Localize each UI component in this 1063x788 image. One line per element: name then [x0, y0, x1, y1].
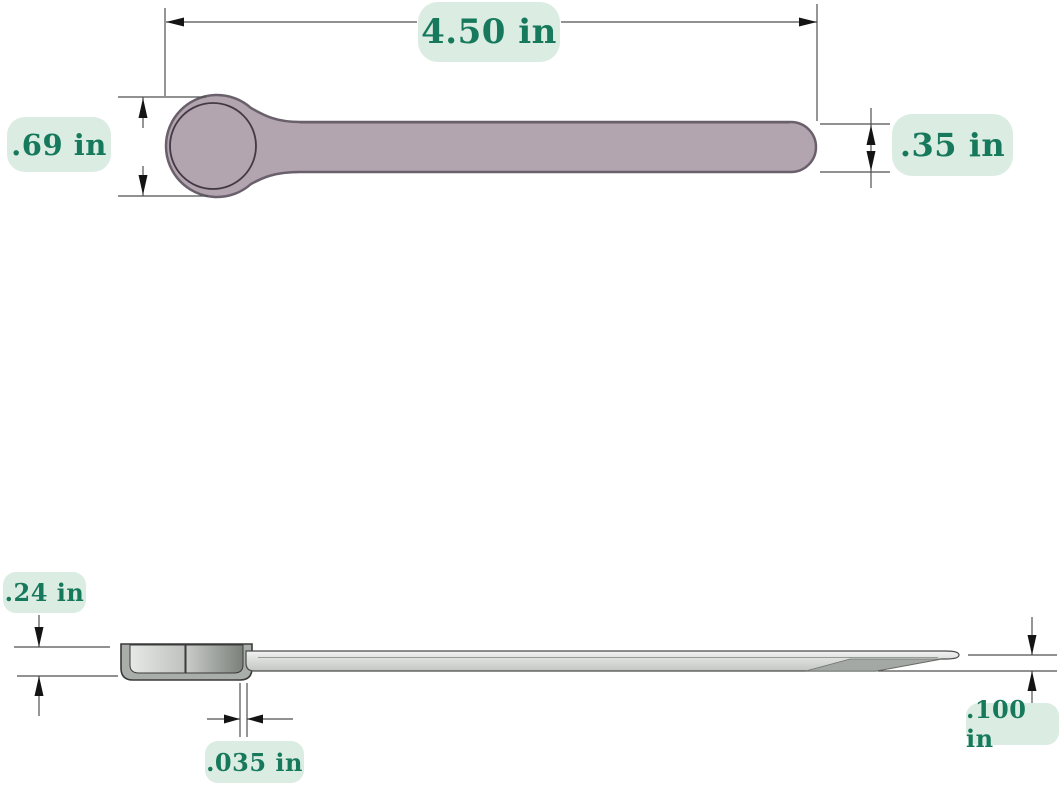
arrow-left-icon — [166, 18, 184, 27]
cup-cavity-right — [186, 645, 243, 673]
arrow-up-icon — [1028, 671, 1037, 691]
arrow-down-icon — [1028, 635, 1037, 655]
dimension-label-bowl-diameter: .69 in — [7, 117, 111, 172]
dimension-label-handle-width: .35 in — [892, 114, 1013, 176]
dimension-label-bowl-depth: .24 in — [3, 572, 86, 613]
dim-bowl-depth-lines — [14, 615, 118, 716]
dimension-label-tip-thickness: .100 in — [966, 703, 1059, 745]
arrow-down-icon — [867, 151, 876, 171]
scoop-top-silhouette — [166, 95, 816, 197]
arrow-down-icon — [139, 175, 148, 195]
arrow-up-icon — [139, 98, 148, 118]
top-view-drawing — [166, 95, 816, 197]
arrow-up-icon — [867, 125, 876, 145]
arrow-right-icon — [224, 715, 240, 724]
arrow-right-icon — [799, 18, 817, 27]
dimension-label-wall-thickness: .035 in — [205, 741, 304, 783]
dimension-label-overall-length: 4.50 in — [418, 2, 560, 62]
arrow-down-icon — [35, 627, 44, 647]
dim-wall-thickness-lines — [207, 683, 293, 737]
cup-cavity-left — [130, 645, 185, 673]
dim-handle-width-lines — [820, 108, 890, 188]
arrow-up-icon — [35, 676, 44, 696]
arrow-left-icon — [247, 715, 263, 724]
side-view-drawing — [121, 644, 959, 680]
scoop-dimension-diagram: 4.50 in .69 in .35 in .24 in .035 in .10… — [0, 0, 1063, 788]
